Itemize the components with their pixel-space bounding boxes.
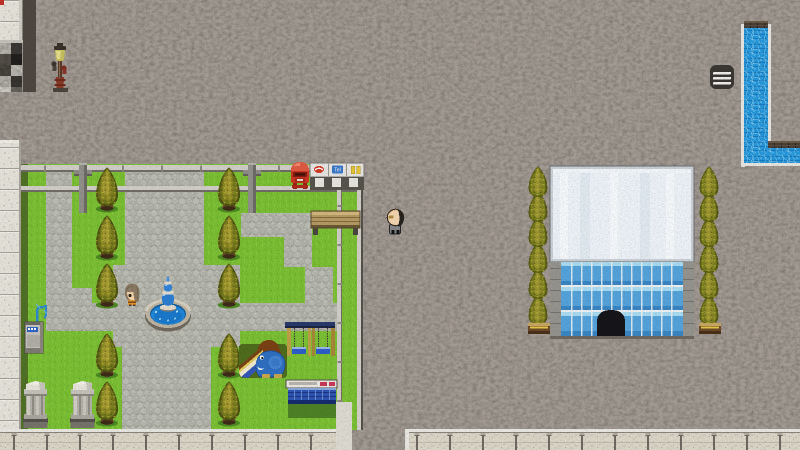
svg-text:Tel: Tel (334, 168, 340, 174)
